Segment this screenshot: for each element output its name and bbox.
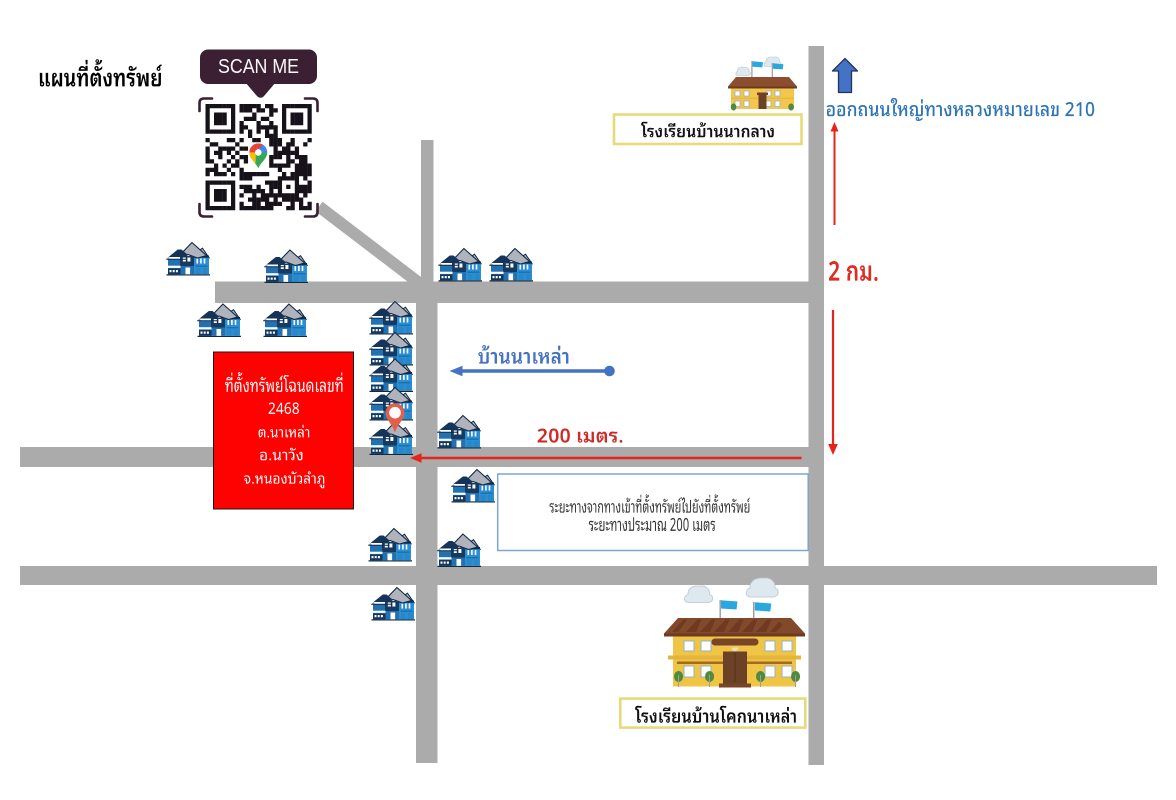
svg-text:SCAN ME: SCAN ME <box>218 55 299 78</box>
